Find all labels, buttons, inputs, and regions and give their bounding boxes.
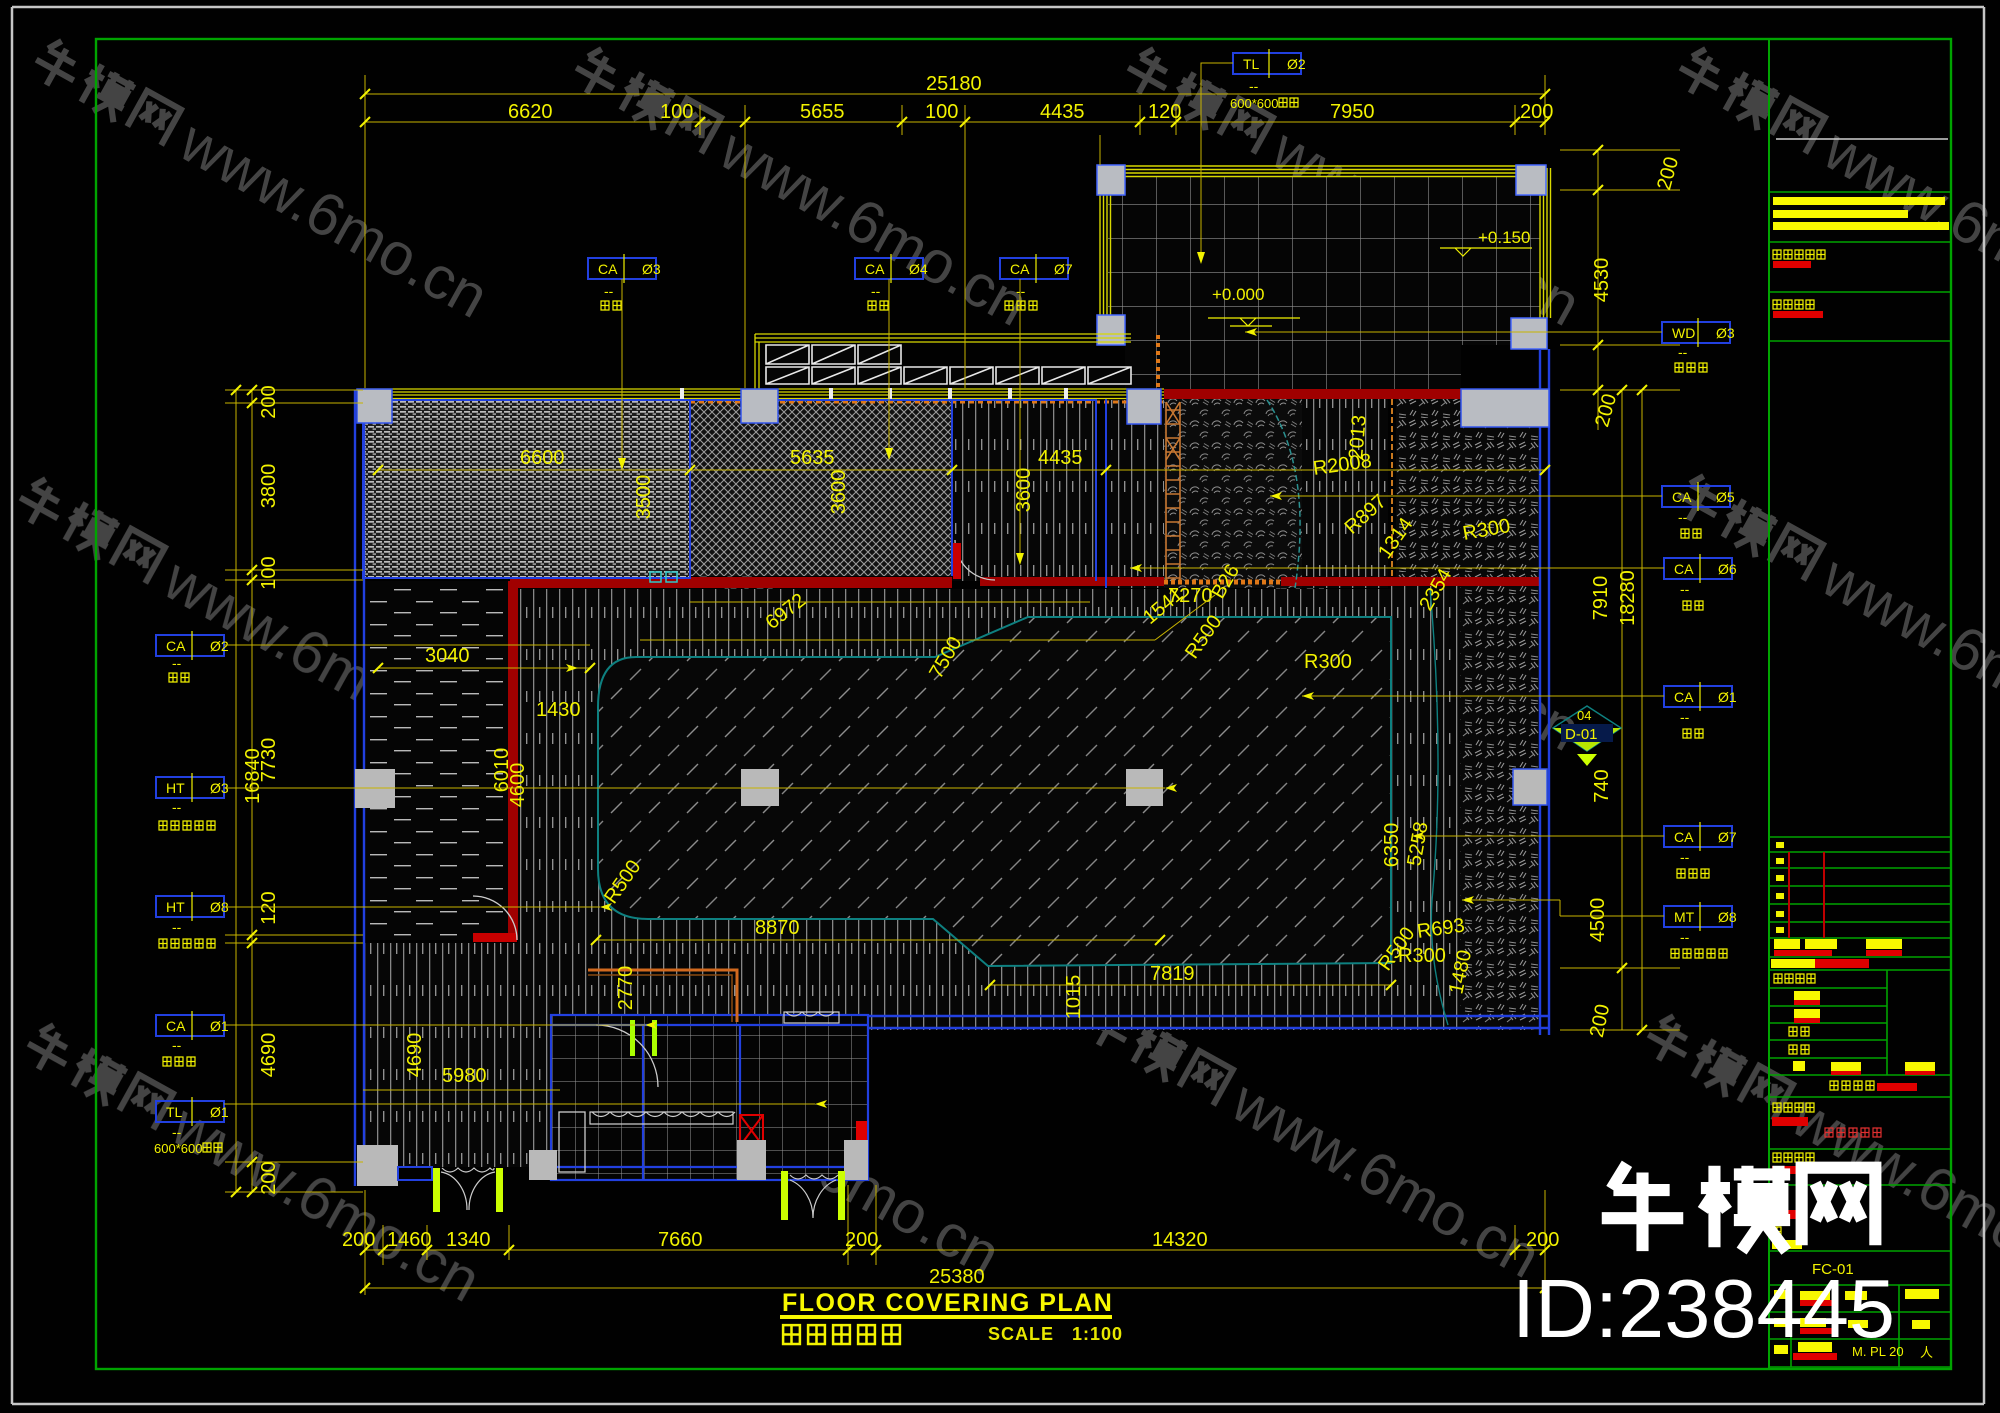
svg-text:4435: 4435 [1040,101,1085,123]
svg-text:--: -- [604,283,614,299]
svg-text:200: 200 [1520,101,1553,123]
svg-text:CA: CA [865,261,885,277]
svg-text:200: 200 [258,1161,280,1194]
svg-text:1015: 1015 [1063,975,1085,1020]
svg-text:D-01: D-01 [1565,726,1598,743]
svg-text:25180: 25180 [926,73,982,95]
svg-text:Ø7: Ø7 [1718,829,1737,845]
svg-text:MT: MT [1674,909,1695,925]
svg-text:3600: 3600 [828,470,850,515]
svg-text:Ø2: Ø2 [210,638,229,654]
svg-text:7270: 7270 [1168,585,1213,607]
svg-text:Ø1: Ø1 [1718,689,1737,705]
svg-text:100: 100 [258,556,280,589]
svg-text:3600: 3600 [1013,468,1035,513]
svg-text:120: 120 [258,891,280,924]
svg-text:--: -- [1680,581,1690,597]
svg-text:6620: 6620 [508,101,553,123]
svg-text:4435: 4435 [1038,447,1083,469]
svg-text:Ø4: Ø4 [909,261,928,277]
svg-text:200: 200 [1526,1229,1559,1251]
svg-text:+0.150: +0.150 [1478,228,1530,247]
svg-text:Ø3: Ø3 [1716,325,1735,341]
svg-text:4690: 4690 [404,1033,426,1078]
svg-text:Ø3: Ø3 [642,261,661,277]
svg-text:+0.000: +0.000 [1212,285,1264,304]
svg-text:--: -- [1249,78,1259,94]
svg-text:100: 100 [660,101,693,123]
svg-text:CA: CA [1010,261,1030,277]
svg-text:7950: 7950 [1330,101,1375,123]
svg-text:--: -- [871,283,881,299]
svg-text:--: -- [172,655,182,671]
svg-text:CA: CA [166,1018,186,1034]
svg-text:Ø1: Ø1 [210,1104,229,1120]
svg-text:Ø1: Ø1 [210,1018,229,1034]
svg-text:4690: 4690 [258,1033,280,1078]
svg-text:--: -- [172,799,182,815]
svg-text:5635: 5635 [790,447,835,469]
svg-text:--: -- [172,1037,182,1053]
svg-text:R300: R300 [1304,651,1352,673]
svg-text:--: -- [1678,509,1688,525]
svg-text:6350: 6350 [1381,823,1403,868]
svg-text:CA: CA [166,638,186,654]
svg-text:5655: 5655 [800,101,845,123]
svg-text:3500: 3500 [633,475,655,520]
svg-text:FLOOR COVERING PLAN: FLOOR COVERING PLAN [782,1289,1113,1317]
svg-text:6600: 6600 [520,447,565,469]
svg-text:3800: 3800 [258,464,280,509]
svg-text:120: 120 [1148,101,1181,123]
svg-text:--: -- [1016,283,1026,299]
svg-text:2770: 2770 [615,966,637,1011]
svg-text:8870: 8870 [755,917,800,939]
svg-text:CA: CA [598,261,618,277]
svg-text:Ø6: Ø6 [1718,561,1737,577]
svg-text:04: 04 [1577,708,1591,723]
svg-text:7660: 7660 [658,1229,703,1251]
svg-text:4530: 4530 [1591,258,1613,303]
svg-text:CA: CA [1672,489,1692,505]
svg-text:WD: WD [1672,325,1695,341]
svg-text:4600: 4600 [507,763,529,808]
svg-text:740: 740 [1591,769,1613,802]
svg-text:--: -- [1680,929,1690,945]
svg-text:200: 200 [258,385,280,418]
svg-text:CA: CA [1674,689,1694,705]
svg-text:SCALE 1:100: SCALE 1:100 [988,1324,1123,1344]
svg-text:2013: 2013 [1345,414,1371,460]
svg-text:200: 200 [845,1229,878,1251]
svg-text:1430: 1430 [536,699,581,721]
svg-text:--: -- [1678,344,1688,360]
svg-text:1460: 1460 [387,1229,432,1251]
svg-text:TL: TL [1243,56,1260,72]
svg-text:CA: CA [1674,829,1694,845]
svg-text:1340: 1340 [446,1229,491,1251]
svg-text:18280: 18280 [1617,570,1639,626]
svg-text:14320: 14320 [1152,1229,1208,1251]
svg-text:4500: 4500 [1587,898,1609,943]
svg-text:Ø2: Ø2 [1287,56,1306,72]
svg-text:ID:238445: ID:238445 [1512,1262,1895,1355]
svg-text:100: 100 [925,101,958,123]
svg-text:Ø5: Ø5 [1716,489,1735,505]
svg-text:7910: 7910 [1590,576,1612,621]
svg-text:--: -- [1680,849,1690,865]
svg-text:Ø7: Ø7 [1054,261,1073,277]
svg-text:25380: 25380 [929,1266,985,1288]
svg-text:600*600: 600*600 [1230,96,1278,111]
svg-text:CA: CA [1674,561,1694,577]
svg-text:人: 人 [1920,1345,1933,1360]
svg-text:TL: TL [166,1104,183,1120]
svg-text:7819: 7819 [1150,963,1195,985]
svg-text:--: -- [172,1124,182,1140]
svg-text:5980: 5980 [442,1065,487,1087]
svg-text:--: -- [172,919,182,935]
svg-text:3040: 3040 [425,645,470,667]
svg-text:--: -- [1680,709,1690,725]
svg-text:200: 200 [342,1229,375,1251]
svg-text:HT: HT [166,780,185,796]
svg-text:16840: 16840 [242,748,264,804]
svg-text:Ø8: Ø8 [1718,909,1737,925]
svg-text:HT: HT [166,899,185,915]
svg-text:600*600: 600*600 [154,1141,202,1156]
